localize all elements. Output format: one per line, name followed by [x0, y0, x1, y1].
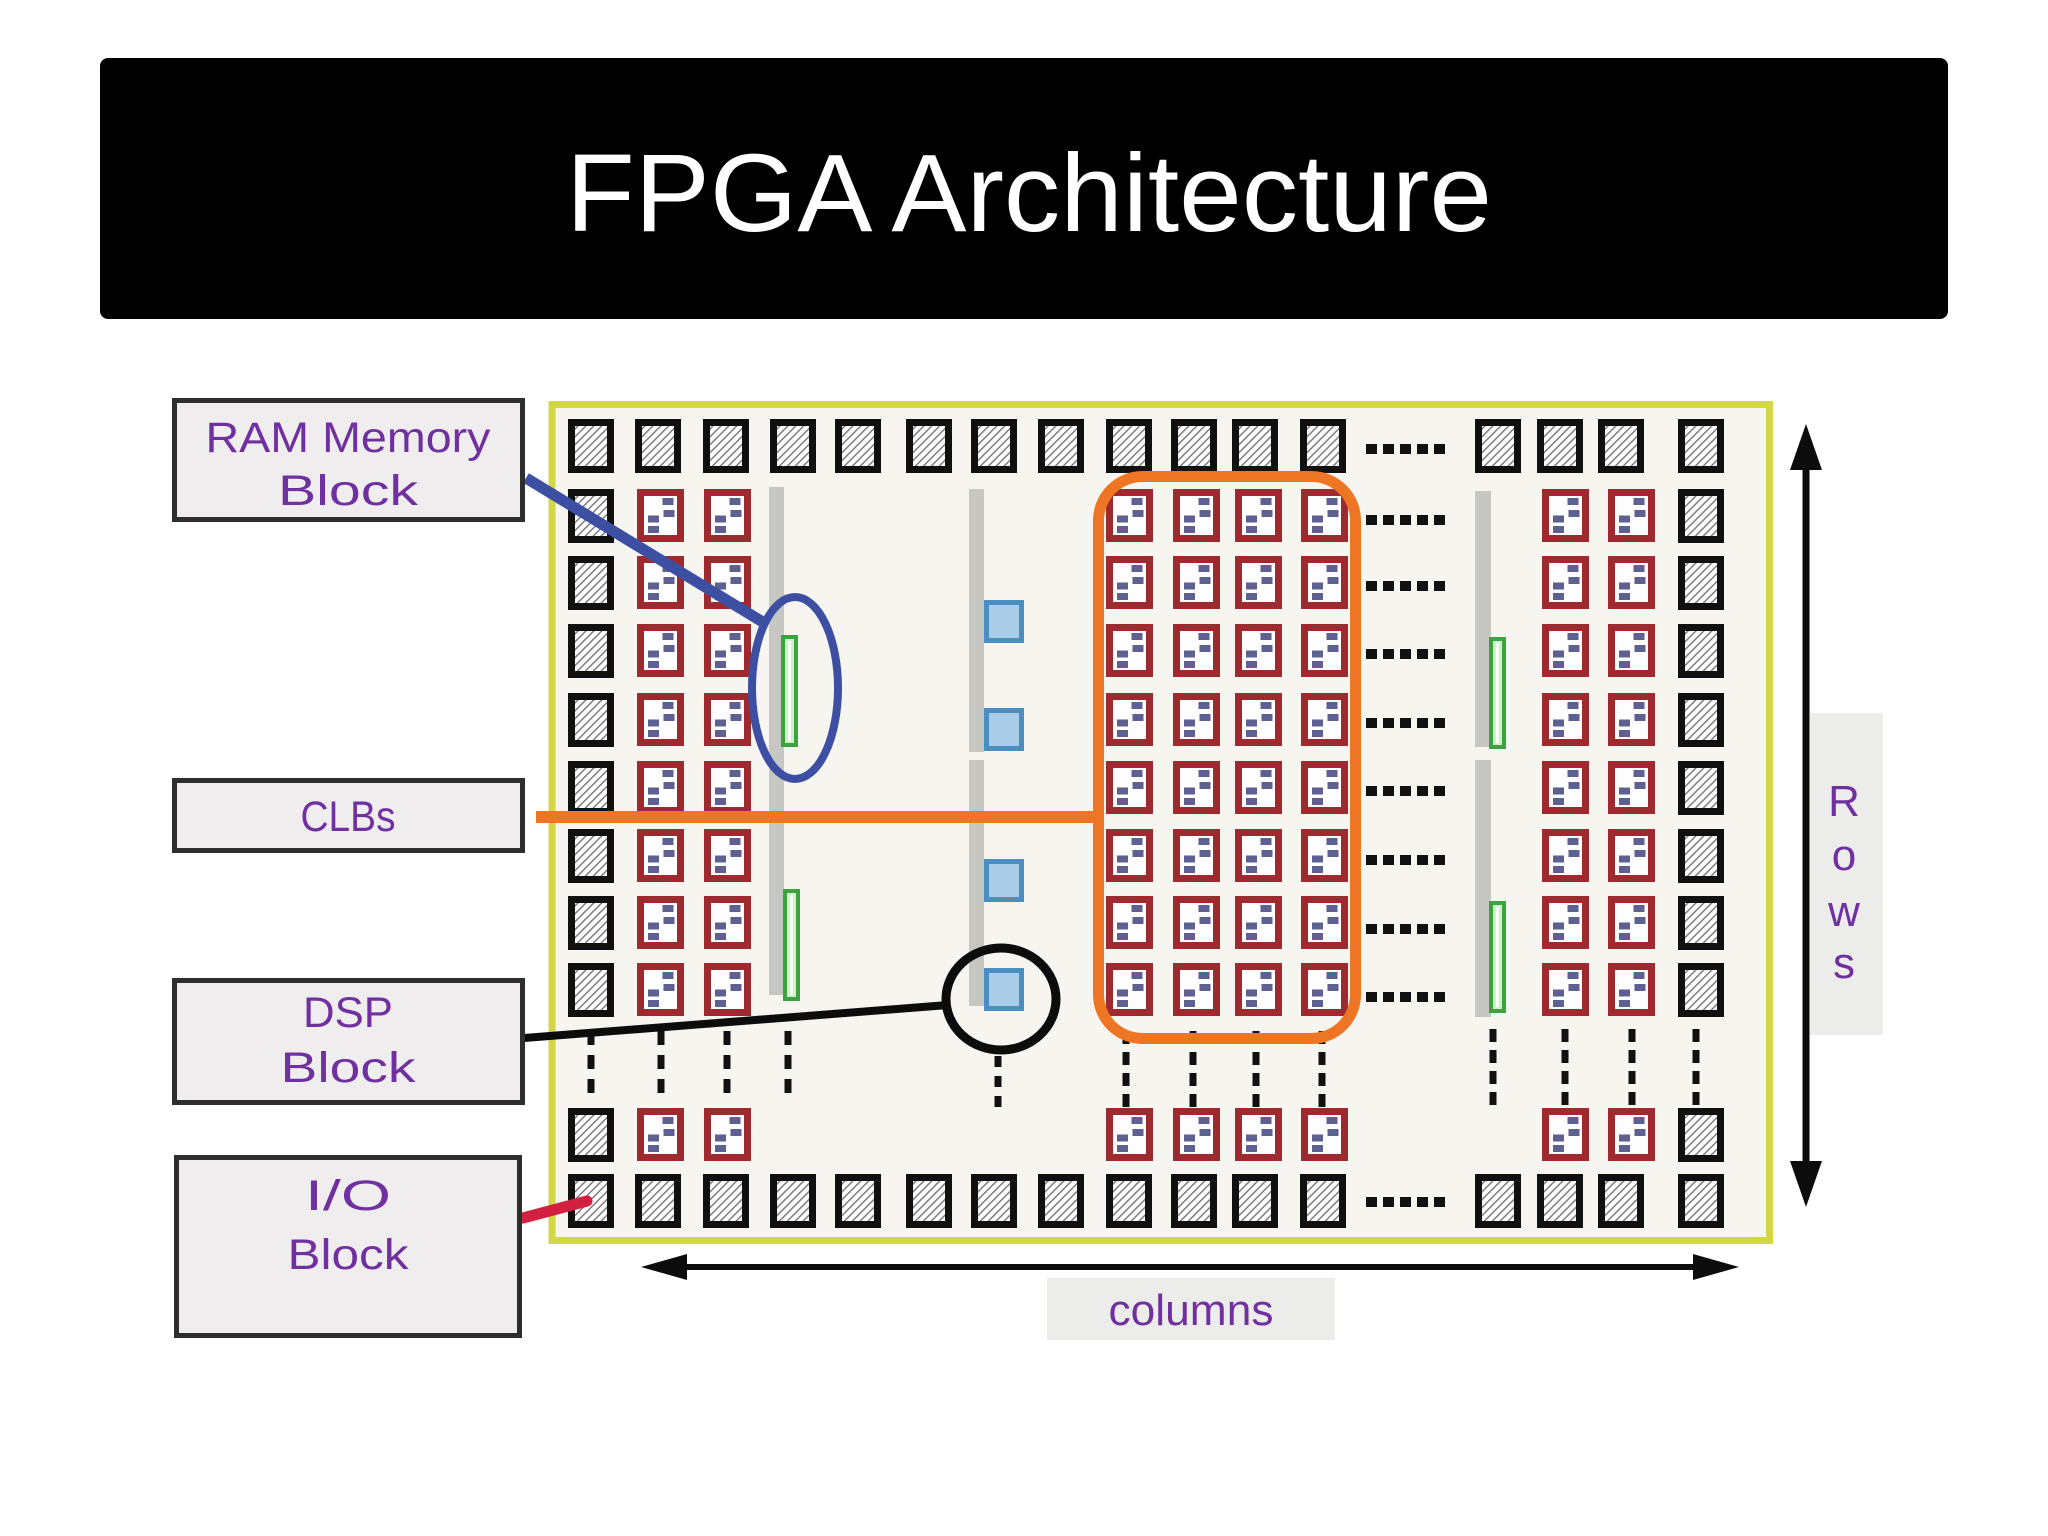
svg-text:R: R — [1828, 777, 1860, 826]
svg-text:Block: Block — [278, 467, 419, 515]
svg-text:o: o — [1832, 831, 1856, 880]
svg-text:DSP: DSP — [303, 989, 393, 1037]
svg-text:I/O: I/O — [305, 1172, 391, 1220]
svg-text:columns: columns — [1109, 1286, 1274, 1335]
svg-text:w: w — [1827, 887, 1860, 936]
svg-text:CLBs: CLBs — [301, 793, 396, 841]
svg-text:Block: Block — [281, 1044, 417, 1092]
svg-text:s: s — [1833, 939, 1855, 988]
svg-text:FPGA Architecture: FPGA Architecture — [566, 132, 1492, 255]
svg-text:RAM Memory: RAM Memory — [206, 414, 492, 462]
svg-text:Block: Block — [288, 1231, 410, 1279]
